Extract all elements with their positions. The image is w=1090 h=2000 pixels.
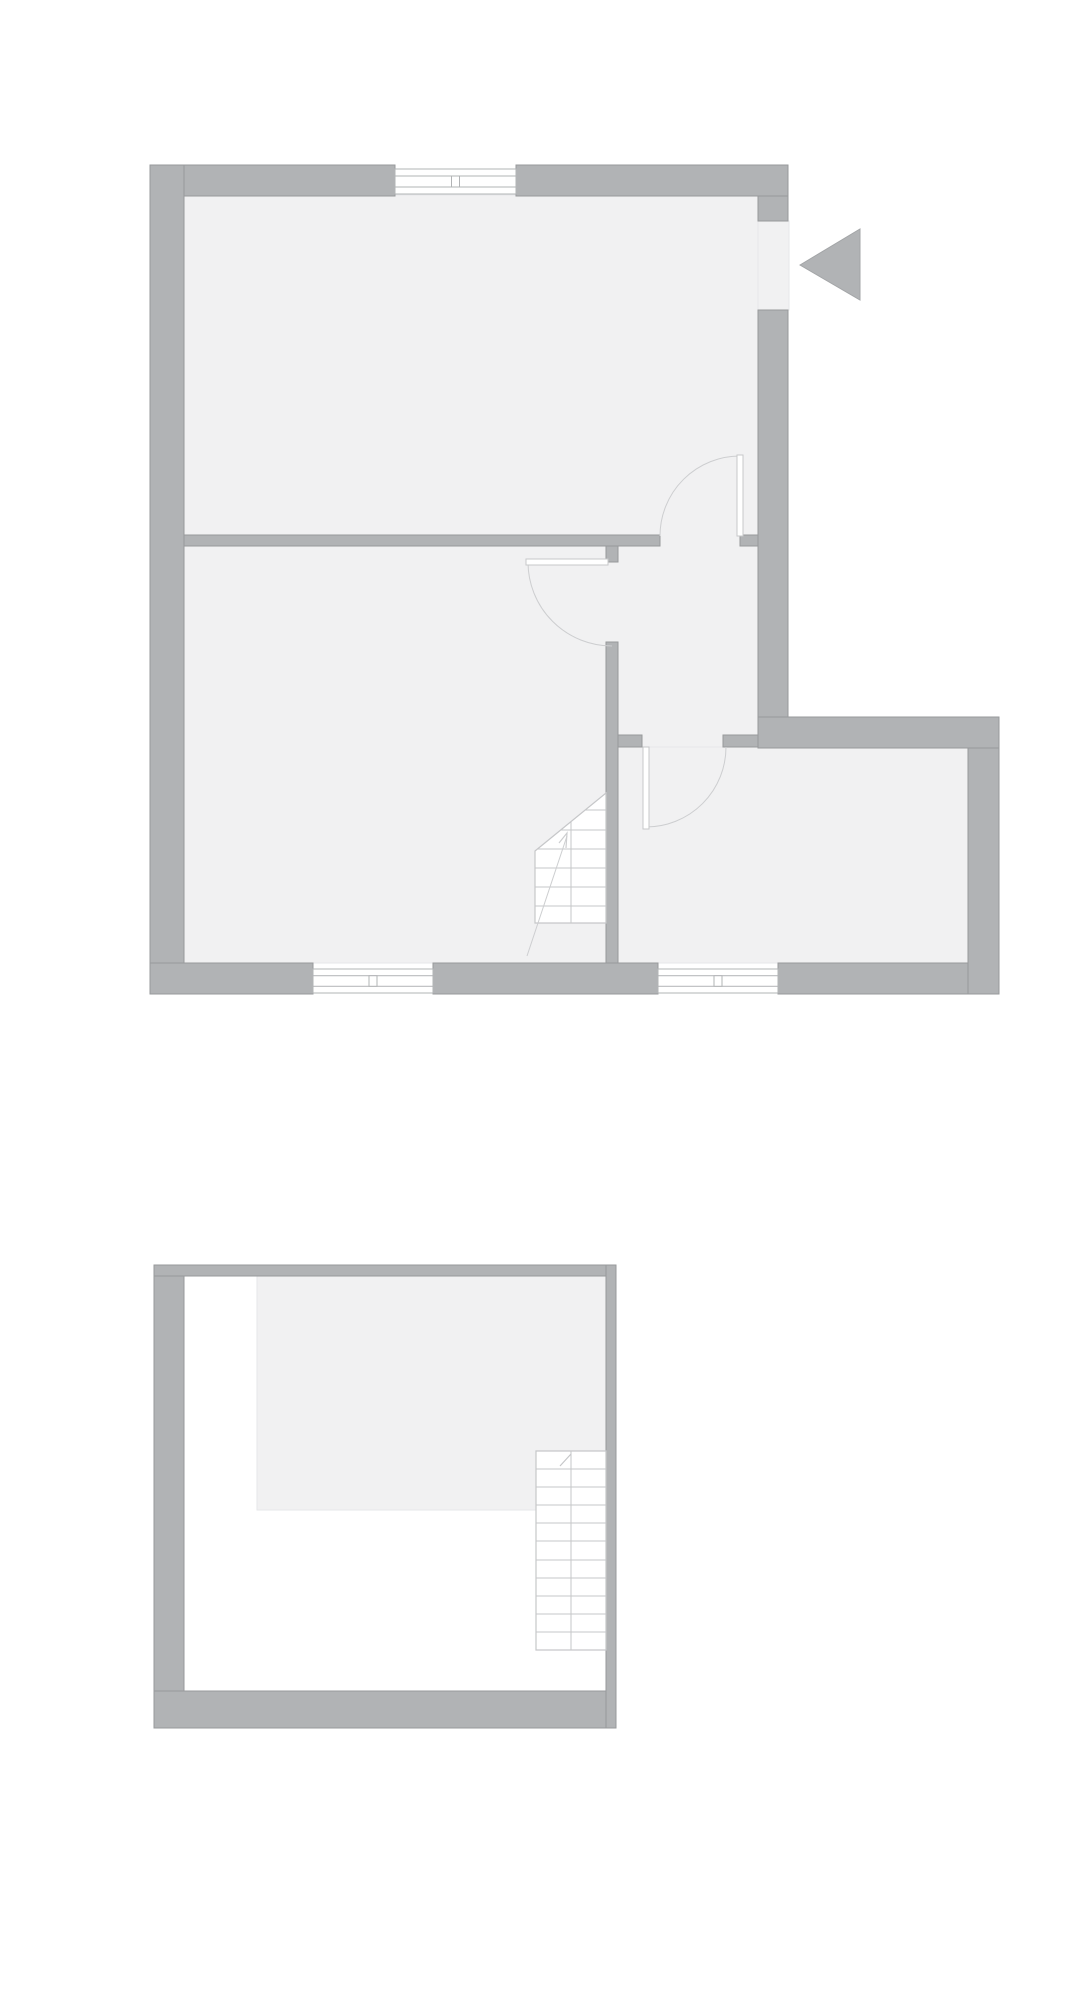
interior-wall: [154, 1265, 616, 1276]
window-mullion: [369, 976, 377, 987]
upper-floor-plan: [154, 1265, 616, 1728]
interior-wall: [606, 1265, 616, 1728]
exterior-wall: [758, 717, 999, 748]
entrance-arrow-icon: [800, 229, 860, 300]
window: [395, 169, 516, 194]
interior-wall: [723, 735, 758, 747]
door-leaf: [526, 559, 608, 565]
window: [313, 969, 433, 993]
floor-area: [758, 221, 789, 310]
exterior-wall: [778, 963, 999, 994]
exterior-wall: [968, 748, 999, 994]
ground-floor-plan: [150, 165, 999, 994]
floor-area: [617, 747, 968, 963]
door-leaf: [643, 747, 649, 829]
floor-plan-drawing: [0, 0, 1090, 2000]
window: [658, 969, 778, 993]
exterior-wall: [758, 310, 788, 717]
exterior-wall: [516, 165, 788, 196]
floor-plan-canvas: [0, 0, 1090, 2000]
interior-wall: [606, 642, 618, 963]
stairs: [536, 1451, 606, 1650]
door-leaf: [737, 455, 743, 536]
window-mullion: [452, 176, 460, 187]
window-mullion: [714, 976, 722, 987]
interior-wall: [618, 735, 642, 747]
exterior-wall: [433, 963, 658, 994]
exterior-wall: [154, 1691, 616, 1728]
exterior-wall: [150, 165, 184, 994]
exterior-wall: [154, 1265, 184, 1728]
exterior-wall: [758, 196, 788, 221]
interior-wall: [740, 535, 758, 546]
exterior-wall: [150, 165, 395, 196]
exterior-wall: [150, 963, 313, 994]
interior-wall: [184, 535, 660, 546]
